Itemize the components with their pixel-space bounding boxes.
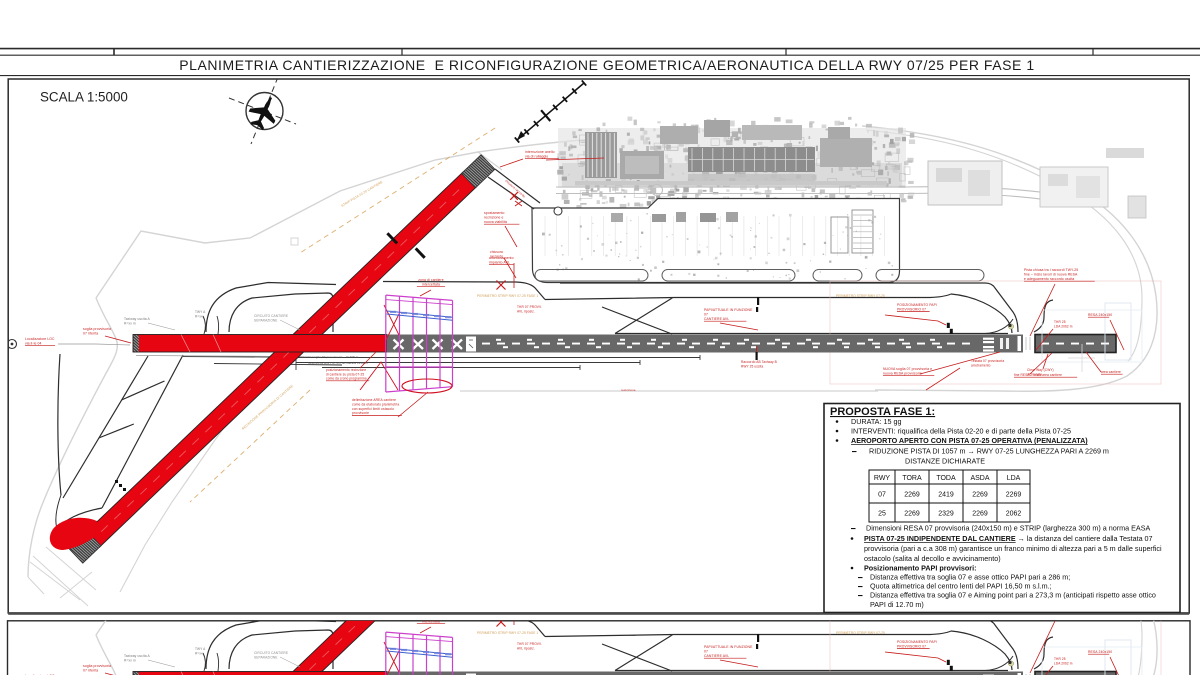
svg-text:PLANIMETRIA CANTIERIZZAZIONE: PLANIMETRIA CANTIERIZZAZIONE E RICONFIGU… [179, 57, 1034, 73]
svg-text:SCALA 1:5000: SCALA 1:5000 [40, 90, 128, 105]
